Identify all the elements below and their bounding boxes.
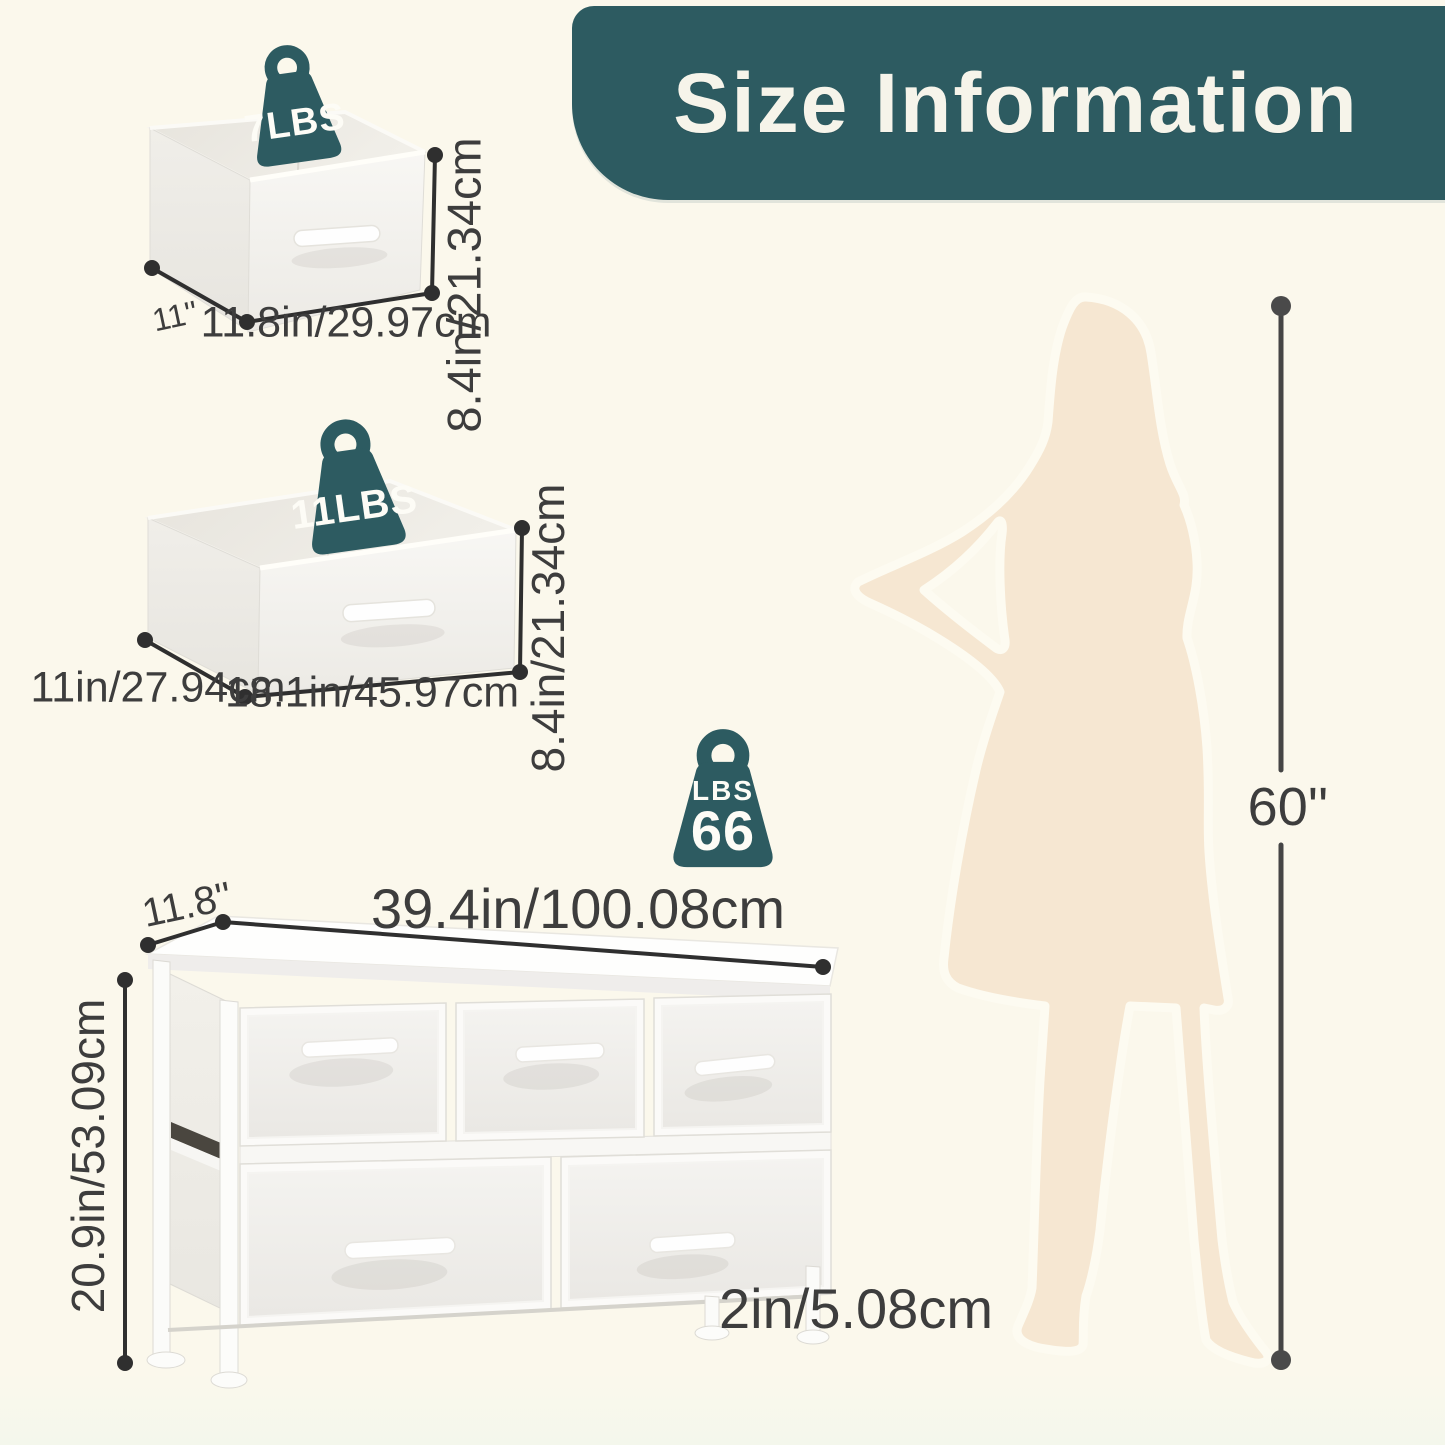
weight-icon-66lbs: LBS 66	[648, 726, 798, 884]
small-drawer-depth-label: 11''	[149, 296, 200, 337]
dresser-top-drawer-2	[456, 999, 644, 1141]
dresser-foot-front-left	[211, 1372, 247, 1388]
dresser-weight-label: LBS 66	[691, 778, 755, 858]
header-banner: Size Information	[572, 6, 1445, 200]
weight-icon-7lbs: 7LBS	[221, 34, 365, 185]
scene-graphics	[0, 0, 1445, 1445]
small-drawer-height-label: 8.4in/21.34cm	[441, 137, 488, 432]
dresser-back-left-post	[153, 960, 170, 1358]
person-height-label: 60''	[1248, 780, 1329, 834]
dresser-height-label: 20.9in/53.09cm	[65, 999, 111, 1314]
dresser-top-drawer-1	[240, 1003, 446, 1146]
large-drawer-width-label: 18.1in/45.97cm	[225, 672, 519, 715]
woman-silhouette	[855, 297, 1268, 1363]
page-title: Size Information	[673, 55, 1358, 152]
dresser-bottom-drawer-1	[240, 1157, 551, 1326]
dresser-foot-back-left	[147, 1352, 185, 1368]
small-drawer-height-line	[432, 155, 435, 293]
dresser-front-left-post	[220, 1000, 238, 1378]
weight-icon-11lbs: 11LBS	[272, 407, 432, 575]
dresser-weight-value: 66	[691, 804, 755, 857]
dresser-leg-middle	[705, 1296, 719, 1330]
dresser-leg-height-label: 2in/5.08cm	[719, 1281, 993, 1337]
size-information-infographic: Size Information 7LBS 11LBS LBS 66 11'' …	[0, 0, 1445, 1445]
dresser-top-drawer-3	[654, 994, 831, 1136]
large-drawer-height-label: 8.4in/21.34cm	[525, 484, 571, 773]
dresser-width-label: 39.4in/100.08cm	[371, 881, 785, 937]
